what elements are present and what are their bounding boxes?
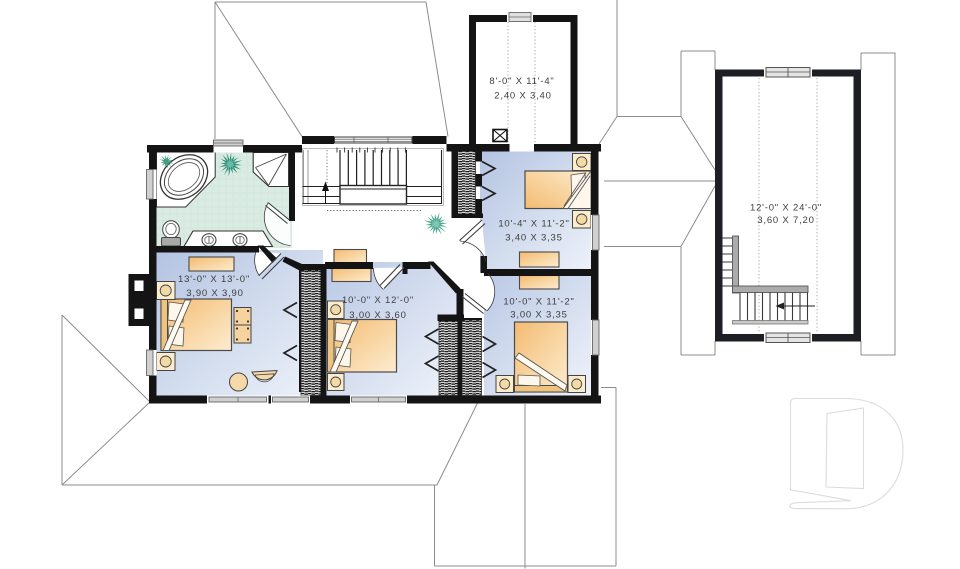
svg-text:2,40 X 3,40: 2,40 X 3,40 xyxy=(494,91,551,102)
svg-text:3,40 X 3,35: 3,40 X 3,35 xyxy=(505,233,562,244)
svg-text:10'-4" X 11'-2": 10'-4" X 11'-2" xyxy=(498,219,569,230)
svg-text:3,00 X 3,60: 3,00 X 3,60 xyxy=(349,310,406,321)
svg-text:3,60 X 7,20: 3,60 X 7,20 xyxy=(757,215,814,226)
svg-text:12'-0" X 24'-0": 12'-0" X 24'-0" xyxy=(750,203,822,214)
svg-text:8'-0" X 11'-4": 8'-0" X 11'-4" xyxy=(489,76,554,87)
svg-text:10'-0" X 11'-2": 10'-0" X 11'-2" xyxy=(503,297,574,308)
svg-text:3,90 X 3,90: 3,90 X 3,90 xyxy=(186,288,243,299)
svg-text:10'-0" X 12'-0": 10'-0" X 12'-0" xyxy=(342,295,414,306)
svg-text:3,00 X 3,35: 3,00 X 3,35 xyxy=(510,310,567,321)
svg-text:13'-0" X 13'-0": 13'-0" X 13'-0" xyxy=(178,274,250,285)
